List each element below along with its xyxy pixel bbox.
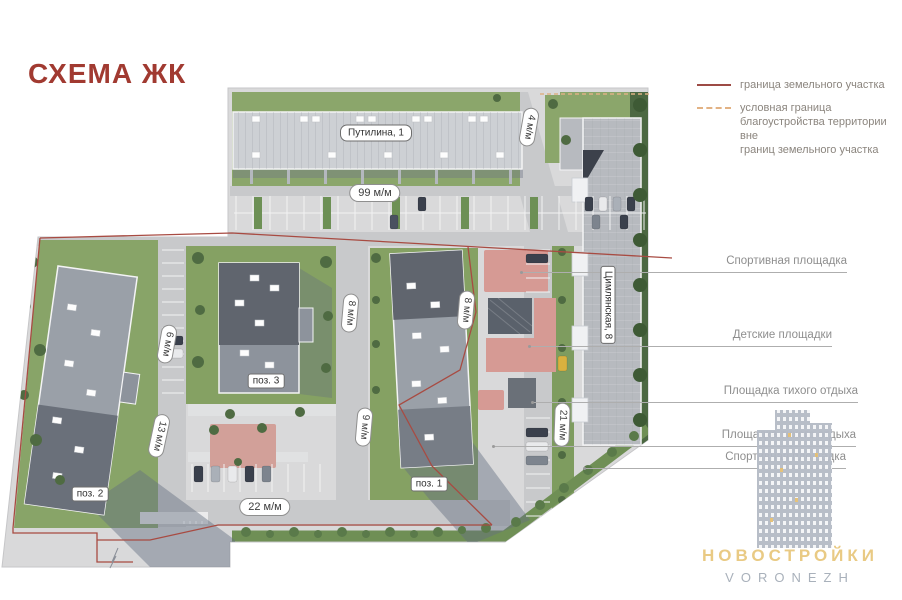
legend-label: граница земельного участка — [740, 78, 885, 92]
distance-label-22m: 22 м/м — [239, 498, 290, 516]
callout-sport-ground-1: Спортивная площадка — [522, 255, 847, 273]
watermark-city: VORONEZH — [690, 570, 890, 585]
building-label-tsimlyanskaya-8: Цимлянская, 8 — [601, 266, 616, 344]
watermark-brand: НОВОСТРОЙКИ — [690, 546, 890, 566]
callout-label: Спортивная площадка — [726, 255, 847, 267]
quiet-rest-ground — [478, 390, 504, 410]
legend-item-parcel-boundary: граница земельного участка — [697, 78, 897, 92]
legend-item-conditional-boundary: условная граница благоустройства террито… — [697, 101, 897, 157]
site-plan-page: СХЕМА ЖК граница земельного участка усло… — [0, 0, 902, 600]
legend-label: условная граница благоустройства террито… — [740, 101, 897, 157]
distance-label-21m: 21 м/м — [553, 403, 571, 448]
dashed-line-key — [697, 107, 731, 109]
distance-label-99m: 99 м/м — [349, 184, 400, 202]
building-label-poz-1: поз. 1 — [411, 477, 448, 492]
callout-label: Площадка тихого отдыха — [724, 385, 858, 397]
building-label-poz-2: поз. 2 — [72, 487, 109, 502]
legend: граница земельного участка условная гран… — [697, 78, 897, 166]
building-poz-1 — [390, 250, 473, 467]
building-label-putilina-1: Путилина, 1 — [340, 125, 412, 142]
page-title: СХЕМА ЖК — [28, 58, 186, 90]
callout-kids-grounds: Детские площадки — [530, 329, 832, 347]
solid-line-key — [697, 84, 731, 86]
building-label-poz-3: поз. 3 — [248, 374, 285, 389]
watermark-tower-icon — [740, 408, 840, 548]
callout-quiet-rest-1: Площадка тихого отдыха — [533, 385, 858, 403]
callout-label: Детские площадки — [733, 329, 832, 341]
